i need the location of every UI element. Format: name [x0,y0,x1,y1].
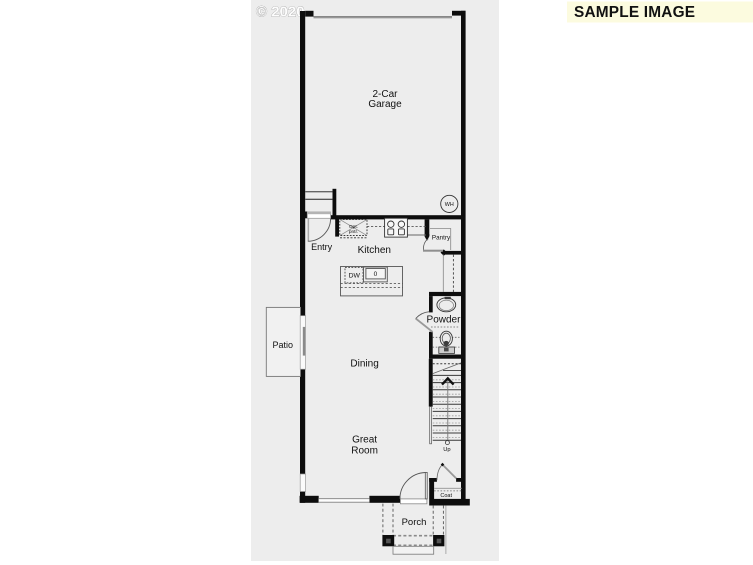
svg-text:Up: Up [443,447,450,453]
svg-text:0: 0 [374,271,378,278]
svg-text:Porch: Porch [402,517,427,528]
svg-text:Great: Great [352,435,377,446]
svg-text:pntr.: pntr. [349,229,358,235]
svg-text:Pantry: Pantry [432,234,451,241]
svg-text:Dining: Dining [350,358,378,369]
svg-text:Entry: Entry [311,242,333,252]
svg-text:Room: Room [351,446,378,457]
svg-text:Patio: Patio [273,340,294,350]
svg-text:WH: WH [445,202,454,208]
svg-text:DW: DW [349,272,361,279]
svg-text:Kitchen: Kitchen [358,245,391,256]
svg-text:Opt.: Opt. [349,224,358,230]
svg-text:Coat: Coat [440,493,452,499]
svg-text:Garage: Garage [368,99,402,110]
svg-text:SAMPLE IMAGE: SAMPLE IMAGE [574,4,695,21]
svg-text:© 2020: © 2020 [256,4,305,21]
svg-text:Powder: Powder [427,315,462,326]
